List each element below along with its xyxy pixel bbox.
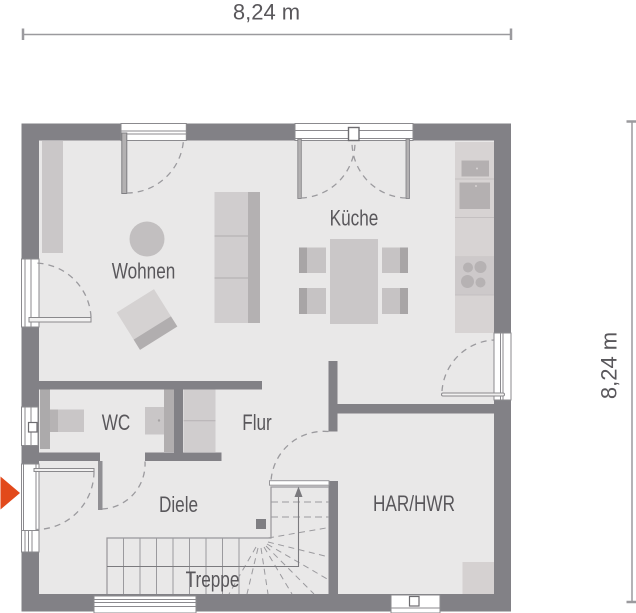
svg-text:HAR/HWR: HAR/HWR — [373, 492, 455, 517]
svg-text:Treppe: Treppe — [186, 568, 240, 593]
svg-text:Wohnen: Wohnen — [112, 260, 176, 285]
svg-text:Flur: Flur — [242, 411, 272, 436]
svg-text:Küche: Küche — [330, 207, 379, 232]
svg-text:Diele: Diele — [159, 493, 198, 518]
svg-text:8,24 m: 8,24 m — [233, 0, 300, 25]
svg-text:WC: WC — [102, 411, 131, 436]
svg-text:8,24 m: 8,24 m — [597, 332, 622, 399]
